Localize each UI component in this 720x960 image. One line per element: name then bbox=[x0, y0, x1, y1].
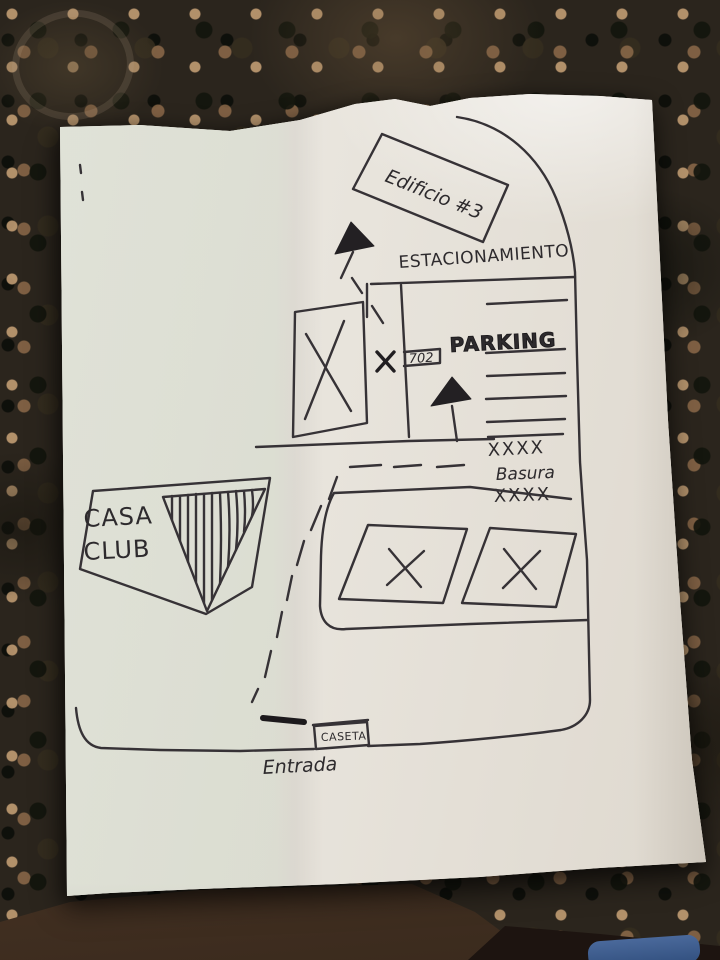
arrow-to-edificio-icon bbox=[335, 222, 374, 278]
hand-drawn-map: Edificio #3 ESTACIONAMIENTO PARKING 702 bbox=[0, 0, 720, 960]
parking-stall-lines bbox=[486, 300, 567, 437]
x-mark-icon bbox=[503, 549, 540, 589]
caseta-label: CASETA bbox=[321, 729, 367, 744]
building-block-x bbox=[293, 302, 367, 437]
casa-label: CASA bbox=[83, 501, 154, 533]
estacionamiento-label: ESTACIONAMIENTO bbox=[398, 241, 570, 273]
unit-702-marker: 702 bbox=[377, 349, 440, 371]
edificio-label: Edificio #3 bbox=[382, 165, 486, 224]
unit-702-label: 702 bbox=[408, 351, 434, 367]
x-mark-icon bbox=[387, 549, 424, 587]
hatch-lines bbox=[172, 490, 253, 603]
covered-parking-area bbox=[320, 487, 588, 629]
property-border bbox=[76, 117, 590, 751]
parking-label: PARKING bbox=[449, 327, 557, 357]
dashed-route bbox=[252, 278, 464, 702]
club-label: CLUB bbox=[83, 535, 151, 566]
photo-of-hand-drawn-map: Edificio #3 ESTACIONAMIENTO PARKING 702 bbox=[0, 0, 720, 960]
entrance-area: CASETA Entrada bbox=[262, 718, 369, 779]
x-mark-icon bbox=[377, 352, 394, 371]
basura-label: Basura bbox=[495, 463, 555, 485]
casa-club-area: CASA CLUB bbox=[80, 478, 270, 614]
pen-marks bbox=[80, 165, 83, 200]
up-arrow-icon bbox=[431, 377, 471, 441]
gate-bar bbox=[263, 718, 304, 722]
x-mark-icon bbox=[305, 321, 351, 419]
entrada-label: Entrada bbox=[262, 753, 338, 779]
trash-x-top: XXXX bbox=[487, 437, 545, 461]
edificio-building: Edificio #3 bbox=[353, 134, 508, 242]
